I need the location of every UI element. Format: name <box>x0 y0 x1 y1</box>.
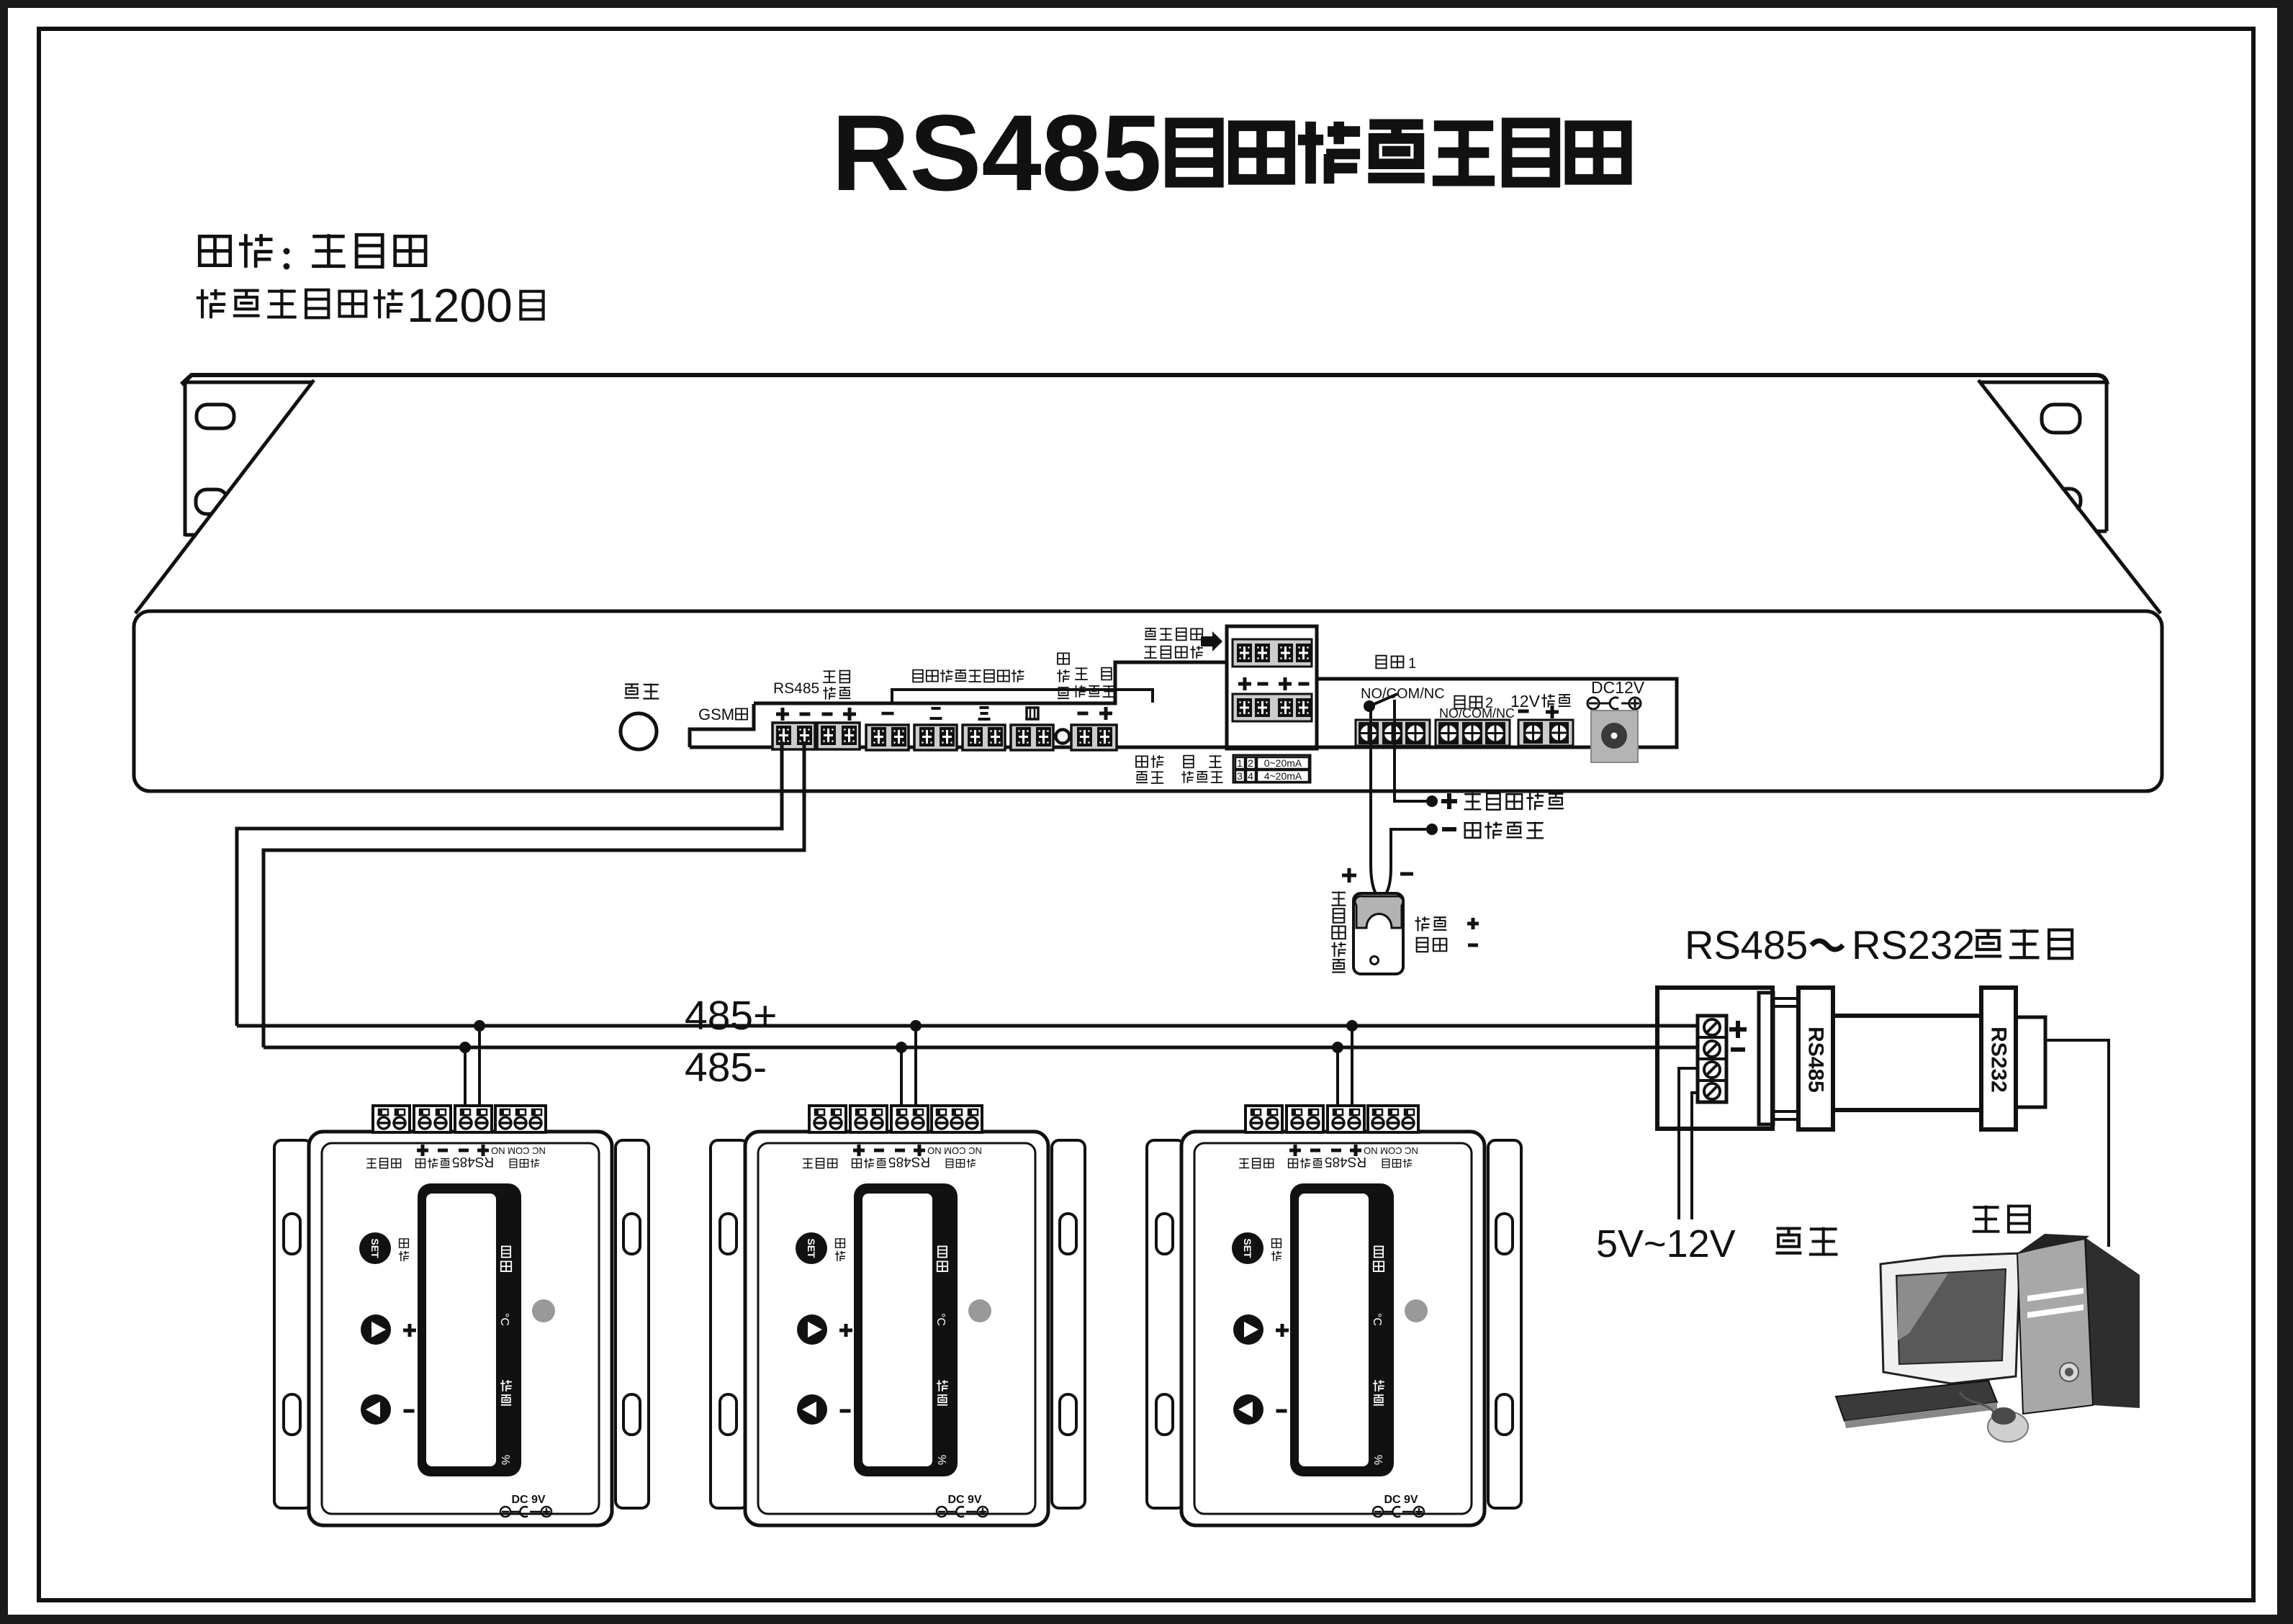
svg-text:2: 2 <box>1248 757 1253 769</box>
svg-text:RS485: RS485 <box>1804 1027 1828 1093</box>
svg-text:DC12V: DC12V <box>1591 678 1645 697</box>
svg-text:RS485: RS485 <box>1685 922 1808 967</box>
svg-text:DC 9V: DC 9V <box>947 1494 981 1506</box>
svg-text:RS485: RS485 <box>1325 1154 1366 1169</box>
svg-text:RS485: RS485 <box>452 1154 494 1169</box>
svg-text:12V: 12V <box>1510 692 1541 710</box>
svg-text:RS485: RS485 <box>832 92 1162 213</box>
svg-text:4~20mA: 4~20mA <box>1264 770 1302 782</box>
svg-text:DC 9V: DC 9V <box>511 1494 545 1506</box>
svg-text:RS232: RS232 <box>1852 922 1975 967</box>
svg-text:°C: °C <box>1371 1313 1383 1326</box>
svg-text:1200: 1200 <box>407 279 513 332</box>
svg-text:485-: 485- <box>685 1045 767 1091</box>
svg-text:SET: SET <box>1242 1238 1253 1258</box>
svg-text:GSM: GSM <box>698 705 734 723</box>
svg-text:485+: 485+ <box>685 993 777 1039</box>
svg-text:°C: °C <box>934 1313 947 1326</box>
svg-text:5V~12V: 5V~12V <box>1596 1222 1736 1266</box>
svg-text:NC COM NO: NC COM NO <box>1364 1145 1418 1156</box>
svg-text:RS232: RS232 <box>1987 1027 2011 1093</box>
svg-text:°C: °C <box>498 1313 510 1326</box>
svg-text:4: 4 <box>1248 770 1253 782</box>
svg-text:DC 9V: DC 9V <box>1384 1494 1418 1506</box>
svg-text:3: 3 <box>1237 770 1243 782</box>
svg-text:NO/COM/NC: NO/COM/NC <box>1439 706 1515 721</box>
svg-text:%: % <box>499 1455 511 1465</box>
svg-text:NC COM NO: NC COM NO <box>927 1145 982 1156</box>
svg-text:NC COM NO: NC COM NO <box>491 1145 546 1156</box>
svg-text:%: % <box>935 1455 947 1465</box>
svg-text:NO/COM/NC: NO/COM/NC <box>1361 686 1445 702</box>
svg-text:SET: SET <box>369 1238 381 1258</box>
svg-text:RS485: RS485 <box>773 680 819 697</box>
svg-text:1: 1 <box>1408 656 1416 672</box>
svg-text:RS485: RS485 <box>888 1154 930 1169</box>
svg-text:%: % <box>1371 1455 1384 1465</box>
svg-text:1: 1 <box>1237 757 1243 769</box>
svg-text:SET: SET <box>806 1238 817 1258</box>
svg-text:0~20mA: 0~20mA <box>1264 757 1302 769</box>
